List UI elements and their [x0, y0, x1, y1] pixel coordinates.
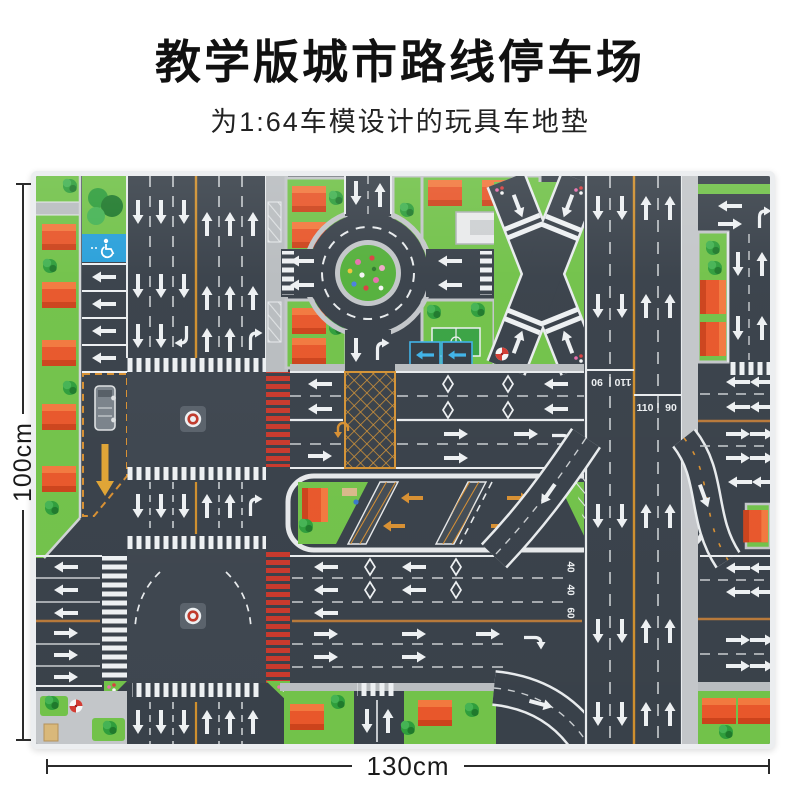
width-dimension: 130cm	[46, 751, 770, 781]
product-title: 教学版城市路线停车场	[0, 26, 800, 92]
product-subtitle: 为1:64车模设计的玩具车地垫	[0, 100, 800, 139]
dimension-line	[22, 510, 24, 739]
play-mat-graphic: 40 40 60	[36, 176, 770, 744]
dimension-tick	[768, 759, 770, 774]
product-image: 40 40 60	[31, 171, 775, 749]
height-dimension: 100cm	[10, 183, 36, 741]
dimension-line	[464, 765, 768, 767]
dimension-line	[48, 765, 352, 767]
width-dimension-label: 130cm	[352, 751, 463, 782]
dimension-tick	[16, 739, 31, 741]
height-dimension-label: 100cm	[9, 414, 38, 510]
photo-sheen	[36, 176, 770, 744]
dimension-line	[22, 185, 24, 414]
